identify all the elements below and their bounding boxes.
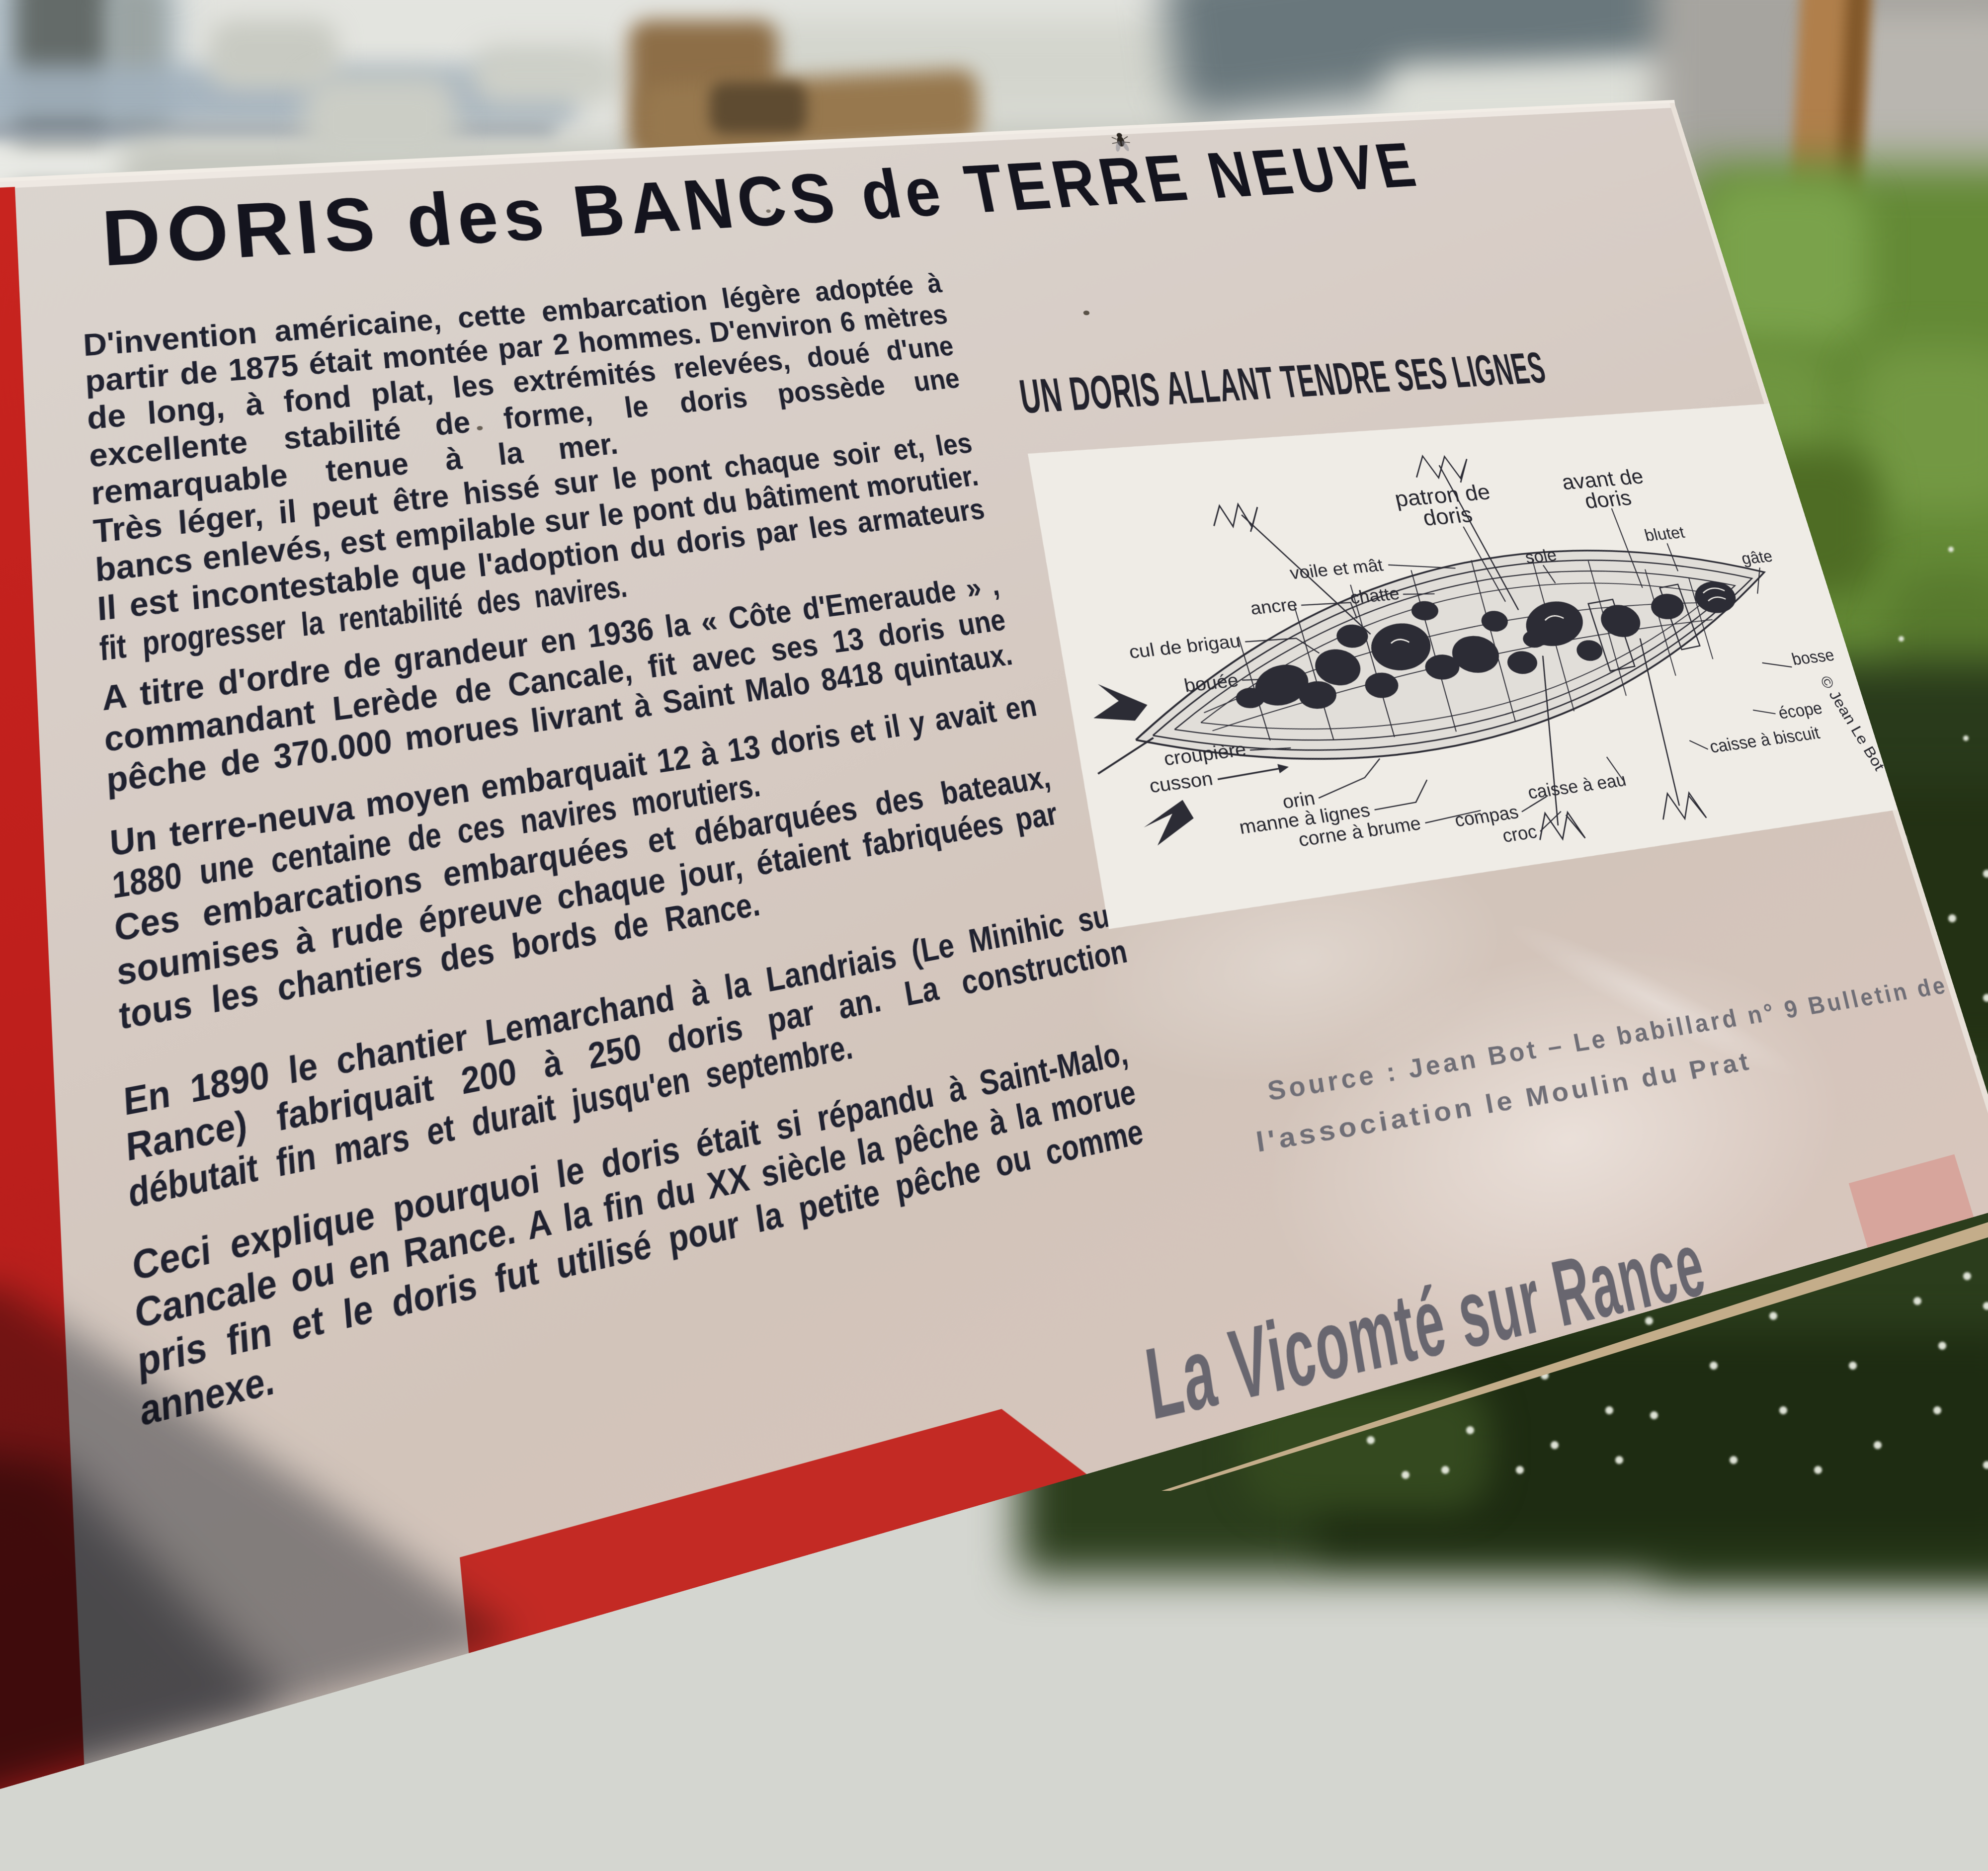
svg-text:sole: sole <box>1523 545 1559 567</box>
svg-text:gâte: gâte <box>1739 547 1774 568</box>
svg-text:doris: doris <box>1420 502 1475 530</box>
svg-text:blutet: blutet <box>1643 523 1687 545</box>
svg-text:doris: doris <box>1582 486 1634 513</box>
